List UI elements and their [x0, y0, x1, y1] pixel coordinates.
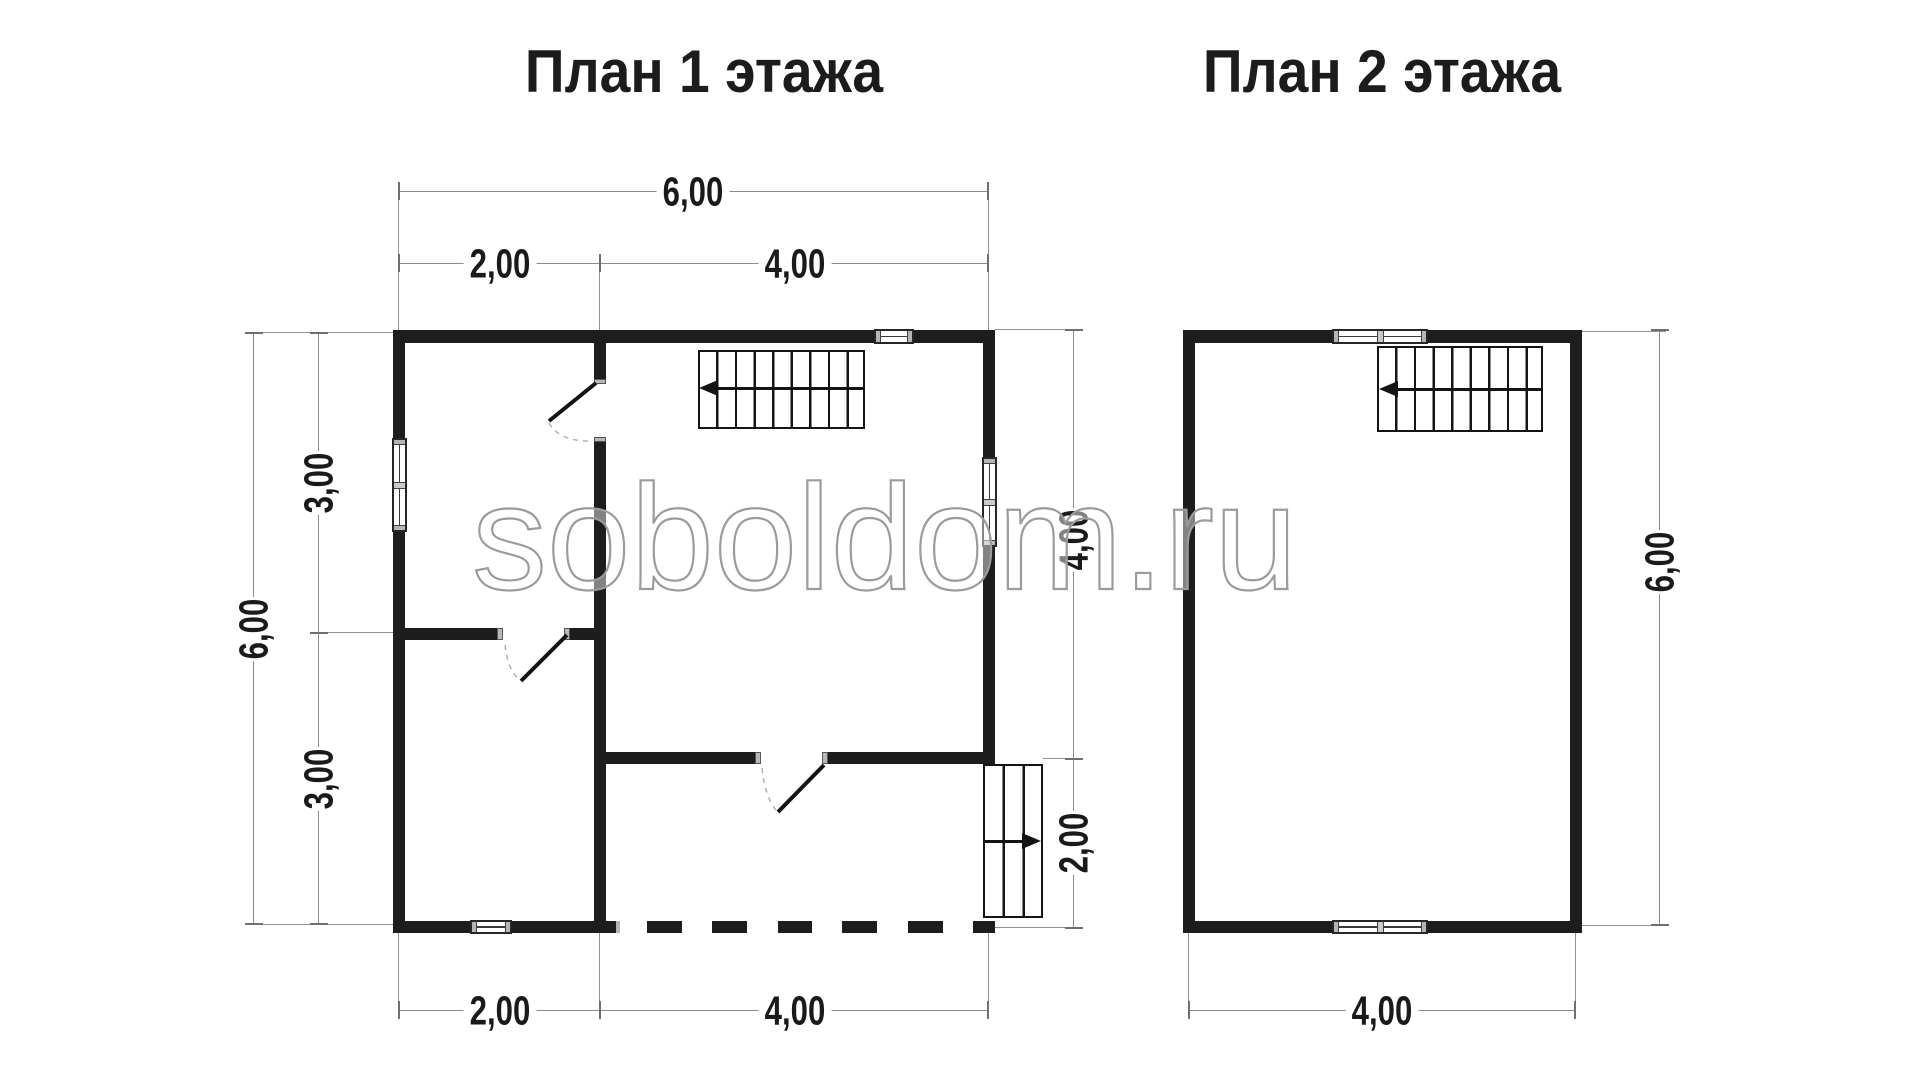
- window-cap: [505, 922, 510, 932]
- plan1-wall-dash: [712, 921, 747, 933]
- dimension-tick: [987, 254, 989, 272]
- dimension-tick: [1065, 329, 1083, 331]
- plan1-wall-inner-lower-left: [606, 752, 755, 764]
- dimension-tick: [310, 632, 328, 634]
- dimension-tick: [398, 254, 400, 272]
- dimension-tick: [599, 1001, 601, 1019]
- plan1-title: План 1 этажа: [525, 42, 883, 102]
- door-leaf: [521, 635, 567, 681]
- plan1-wall-dash: [778, 921, 812, 933]
- plan2-wall-left: [1183, 330, 1195, 933]
- plan1-door3-jamb-right: [822, 752, 828, 764]
- extension-line: [1575, 933, 1576, 1011]
- plan2-window-top: [1332, 329, 1428, 344]
- dimension-tick: [398, 1001, 400, 1019]
- dimension-tick: [1188, 1001, 1190, 1019]
- plan1-wall-dash: [842, 921, 877, 933]
- dimension-tick: [1574, 1001, 1576, 1019]
- door-leaf: [549, 383, 596, 421]
- plan1-wall-inner-middle-right: [570, 628, 594, 640]
- dimension-tick: [1651, 329, 1669, 331]
- dim-plan1-top-right: 4,00: [759, 242, 832, 287]
- extension-line: [398, 933, 399, 1011]
- window-cap: [1421, 331, 1426, 342]
- window-mullion: [394, 482, 405, 489]
- dim-plan1-top-total: 6,00: [657, 170, 730, 215]
- plan2-staircase-direction-line: [1390, 388, 1543, 391]
- dim-plan1-left-upper: 3,00: [291, 451, 348, 515]
- door-swing-arc: [762, 768, 776, 810]
- window-cap: [394, 440, 405, 445]
- plan1-wall-left: [393, 330, 405, 933]
- dimension-tick: [1651, 924, 1669, 926]
- dimension-tick: [599, 254, 601, 272]
- dim-plan1-top-left: 2,00: [464, 242, 537, 287]
- dimension-tick: [987, 1001, 989, 1019]
- dimension-tick: [245, 332, 263, 334]
- plan1-window-left: [392, 438, 407, 532]
- watermark-text: soboldom.ru: [472, 462, 1297, 612]
- plan1-staircase: [698, 350, 865, 429]
- plan1-door2-jamb-right: [564, 628, 570, 640]
- plan1-door1-jamb-bottom: [594, 437, 606, 442]
- plan2-window-bottom: [1332, 920, 1428, 934]
- dim-plan1-left-lower: 3,00: [291, 747, 348, 811]
- plan1-porch-direction-line: [983, 840, 1025, 843]
- window-cap: [876, 331, 881, 342]
- plan1-window-top: [874, 329, 914, 344]
- door-swing-arc: [549, 423, 592, 441]
- plan1-wall-inner-middle-left: [405, 628, 497, 640]
- plan1-wall-dash: [647, 921, 682, 933]
- plan1-wall-inner-vertical-stub: [594, 343, 606, 379]
- dim-plan2-right: 6,00: [1632, 530, 1689, 594]
- window-cap: [394, 525, 405, 530]
- extension-line: [1188, 933, 1189, 1011]
- dimension-tick: [245, 923, 263, 925]
- floor-plan-sheet: План 1 этажа План 2 этажа: [0, 0, 1920, 1080]
- dim-plan2-bottom: 4,00: [1346, 989, 1419, 1034]
- dimension-tick: [310, 923, 328, 925]
- window-cap: [472, 922, 477, 932]
- door-leaf: [778, 765, 824, 812]
- extension-line: [318, 632, 393, 633]
- plan1-door3-jamb-left: [755, 752, 761, 764]
- plan1-door2-jamb-left: [497, 628, 503, 640]
- dim-plan1-right-lower: 2,00: [1046, 811, 1103, 875]
- extension-line: [1582, 331, 1666, 332]
- plan2-wall-right: [1570, 330, 1582, 933]
- dimension-tick: [1065, 758, 1083, 760]
- dim-plan1-left-total: 6,00: [226, 597, 283, 661]
- plan2-title: План 2 этажа: [1203, 42, 1561, 102]
- dimension-tick: [1065, 927, 1083, 929]
- dimension-tick: [398, 182, 400, 200]
- plan1-door1-jamb-top: [594, 379, 606, 384]
- window-cap: [1334, 922, 1339, 932]
- window-mullion: [1377, 922, 1384, 932]
- window-cap: [1334, 331, 1339, 342]
- dimension-line: [1659, 330, 1660, 926]
- dim-plan1-bottom-right: 4,00: [759, 989, 832, 1034]
- window-mullion: [1377, 331, 1384, 342]
- plan1-wall-inner-lower-right: [828, 752, 983, 764]
- plan1-wall-bottom-cap: [616, 921, 620, 933]
- window-cap: [1421, 922, 1426, 932]
- plan1-staircase-direction-line: [710, 387, 865, 390]
- dim-plan1-bottom-left: 2,00: [464, 989, 537, 1034]
- plan1-wall-bottom-corner: [973, 921, 995, 933]
- dimension-tick: [310, 332, 328, 334]
- plan1-window-bottom: [470, 920, 512, 934]
- plan1-wall-dash: [908, 921, 943, 933]
- door-swing-arc: [505, 645, 519, 679]
- extension-line: [599, 933, 600, 1011]
- dimension-tick: [987, 182, 989, 200]
- window-cap: [907, 331, 912, 342]
- dimension-line: [318, 333, 319, 925]
- extension-line: [988, 933, 989, 1011]
